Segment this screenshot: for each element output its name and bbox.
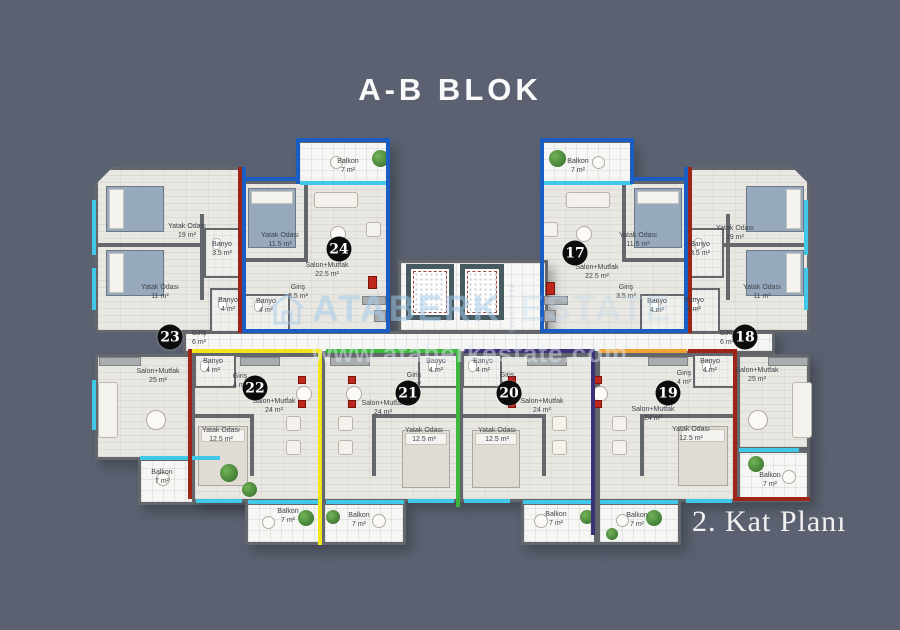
plant-icon — [298, 510, 314, 526]
window-glass — [523, 500, 595, 504]
floor-plan-canvas: A-B BLOK — [0, 0, 900, 630]
room-label: Balkon7 m² — [277, 507, 298, 525]
room-label: Balkon7 m² — [151, 468, 172, 486]
plant-icon — [748, 456, 764, 472]
apartment-outline — [464, 349, 595, 353]
apartment-outline — [630, 177, 688, 181]
armchair-icon — [552, 440, 567, 455]
window-glass — [544, 181, 632, 185]
armchair-icon — [366, 222, 381, 237]
room-label: Yatak Odası12.5 m² — [202, 426, 240, 444]
wall — [622, 258, 688, 262]
bed-blue-icon — [746, 186, 804, 232]
room-label: Salon+Mutfak24 m² — [632, 405, 675, 423]
apartment-outline — [318, 349, 322, 545]
chair-red-icon — [594, 376, 602, 384]
apartment-outline — [296, 138, 300, 184]
armchair-icon — [338, 440, 353, 455]
room-label: Salon+Mutfak22.5 m² — [306, 261, 349, 279]
room-label: Balkon7 m² — [567, 157, 588, 175]
apartment-outline — [188, 349, 192, 499]
cabinet-red-icon — [368, 276, 377, 289]
room-label: Banyo4 m² — [473, 357, 493, 375]
window-glass — [408, 499, 454, 503]
window-glass — [464, 499, 510, 503]
room-label: Banyo4 m² — [426, 357, 446, 375]
window-glass — [196, 499, 242, 503]
wall — [640, 418, 644, 476]
chair-red-icon — [298, 376, 306, 384]
chair-red-icon — [348, 400, 356, 408]
apartment-number-badge: 19 — [656, 381, 681, 406]
block-title: A-B BLOK — [0, 72, 900, 108]
window-glass — [140, 456, 220, 460]
apartment-outline — [540, 138, 544, 333]
room-label: Banyo3.5 m² — [212, 240, 232, 258]
wall — [372, 418, 376, 476]
wall — [250, 414, 254, 476]
room-label: Banyo4 m² — [684, 296, 704, 314]
room-label: Balkon7 m² — [545, 510, 566, 528]
apartment-outline — [456, 349, 460, 507]
elevator-shaft — [406, 264, 454, 320]
apartment-number-badge: 18 — [733, 325, 758, 350]
apartment-outline — [591, 349, 595, 535]
counter-icon — [768, 357, 808, 366]
apartment-number-badge: 22 — [243, 376, 268, 401]
room-label: Giriş6 m² — [192, 329, 206, 347]
window-glass — [739, 448, 799, 452]
armchair-icon — [286, 416, 301, 431]
counter-icon — [374, 310, 386, 322]
chair-red-icon — [298, 400, 306, 408]
room-label: Banyo4 m² — [647, 297, 667, 315]
counter-icon — [544, 296, 568, 305]
table-round-icon — [372, 514, 386, 528]
apartment-outline — [242, 167, 246, 333]
window-glass — [326, 500, 404, 504]
armchair-icon — [552, 416, 567, 431]
chair-red-icon — [348, 376, 356, 384]
window-glass — [248, 500, 320, 504]
room-label: Banyo3.5 m² — [690, 240, 710, 258]
apartment-outline — [688, 349, 737, 353]
sofa-icon — [566, 192, 610, 208]
room-label: Yatak Odası11 m² — [743, 283, 781, 301]
plant-icon — [220, 464, 238, 482]
apartment-number-badge: 20 — [497, 381, 522, 406]
room-label: Yatak Odası11.5 m² — [619, 231, 657, 249]
table-round-icon — [782, 470, 796, 484]
window-glass — [92, 200, 96, 255]
wall — [192, 414, 254, 418]
apartment-outline — [540, 138, 634, 142]
window-glass — [92, 380, 96, 430]
apartment-outline — [733, 497, 810, 501]
counter-icon — [648, 357, 688, 366]
table-round-icon — [262, 516, 275, 529]
apartment-number-badge: 17 — [563, 241, 588, 266]
apartment-outline — [540, 329, 688, 333]
sofa-icon — [792, 382, 812, 438]
plant-icon — [646, 510, 662, 526]
table-round-icon — [576, 226, 592, 242]
counter-icon — [544, 310, 556, 322]
wall — [542, 418, 546, 476]
window-glass — [804, 200, 808, 255]
apartment-outline — [242, 329, 390, 333]
armchair-icon — [612, 440, 627, 455]
wall — [304, 181, 308, 259]
room-label: Salon+Mutfak25 m² — [736, 366, 779, 384]
counter-icon — [362, 296, 386, 305]
bed-blue-icon — [106, 186, 164, 232]
window-glass — [686, 499, 732, 503]
room-label: Giriş4 m² — [677, 369, 691, 387]
table-round-icon — [592, 156, 605, 169]
window-glass — [804, 268, 808, 310]
armchair-icon — [286, 440, 301, 455]
room-label: Yatak Odası19 m² — [716, 224, 754, 242]
room-label: Balkon7 m² — [759, 471, 780, 489]
room-label: Banyo4 m² — [203, 357, 223, 375]
plant-icon — [242, 482, 257, 497]
sofa-icon — [314, 192, 358, 208]
apartment-outline — [630, 138, 634, 184]
cabinet-red-icon — [546, 282, 555, 295]
apartment-outline — [326, 349, 460, 353]
plant-icon — [606, 528, 618, 540]
apartment-outline — [192, 349, 322, 353]
counter-icon — [99, 357, 141, 366]
room-label: Yatak Odası12.5 m² — [478, 426, 516, 444]
room-label: Yatak Odası11 m² — [141, 283, 179, 301]
room-label: Balkon7 m² — [348, 511, 369, 529]
apartment-number-badge: 21 — [396, 381, 421, 406]
room-label: Salon+Mutfak22.5 m² — [576, 263, 619, 281]
room-label: Banyo4 m² — [700, 357, 720, 375]
window-glass — [300, 181, 388, 185]
room-label: Balkon7 m² — [626, 511, 647, 529]
armchair-icon — [612, 416, 627, 431]
room-label: Balkon7 m² — [337, 157, 358, 175]
armchair-icon — [543, 222, 558, 237]
room-label: Yatak Odası12.5 m² — [405, 426, 443, 444]
counter-icon — [527, 357, 567, 366]
plant-icon — [549, 150, 566, 167]
apartment-outline — [242, 177, 300, 181]
wall — [242, 258, 308, 262]
room-label: Banyo4 m² — [256, 297, 276, 315]
table-round-icon — [146, 410, 166, 430]
counter-icon — [240, 357, 280, 366]
table-round-icon — [748, 410, 768, 430]
room-label: Giriş3.5 m² — [616, 283, 636, 301]
room-label: Yatak Odası19 m² — [168, 222, 206, 240]
apartment-number-badge: 23 — [158, 325, 183, 350]
apartment-outline — [386, 138, 390, 333]
window-glass — [600, 500, 678, 504]
armchair-icon — [338, 416, 353, 431]
chair-red-icon — [594, 400, 602, 408]
floor-label: 2. Kat Planı — [692, 505, 847, 539]
apartment-outline — [599, 349, 687, 353]
room-label: Salon+Mutfak25 m² — [137, 367, 180, 385]
plant-icon — [326, 510, 340, 524]
room-label: Yatak Odası11.5 m² — [261, 231, 299, 249]
wall — [95, 243, 200, 247]
room-label: Salon+Mutfak24 m² — [521, 397, 564, 415]
room-label: Banyo4 m² — [218, 296, 238, 314]
counter-icon — [330, 357, 370, 366]
room-label: Giriş3.5 m² — [288, 283, 308, 301]
room-label: Yatak Odası12.5 m² — [672, 425, 710, 443]
apartment-number-badge: 24 — [327, 237, 352, 262]
sofa-icon — [98, 382, 118, 438]
window-glass — [92, 268, 96, 310]
elevator-shaft — [460, 264, 504, 320]
apartment-outline — [296, 138, 390, 142]
